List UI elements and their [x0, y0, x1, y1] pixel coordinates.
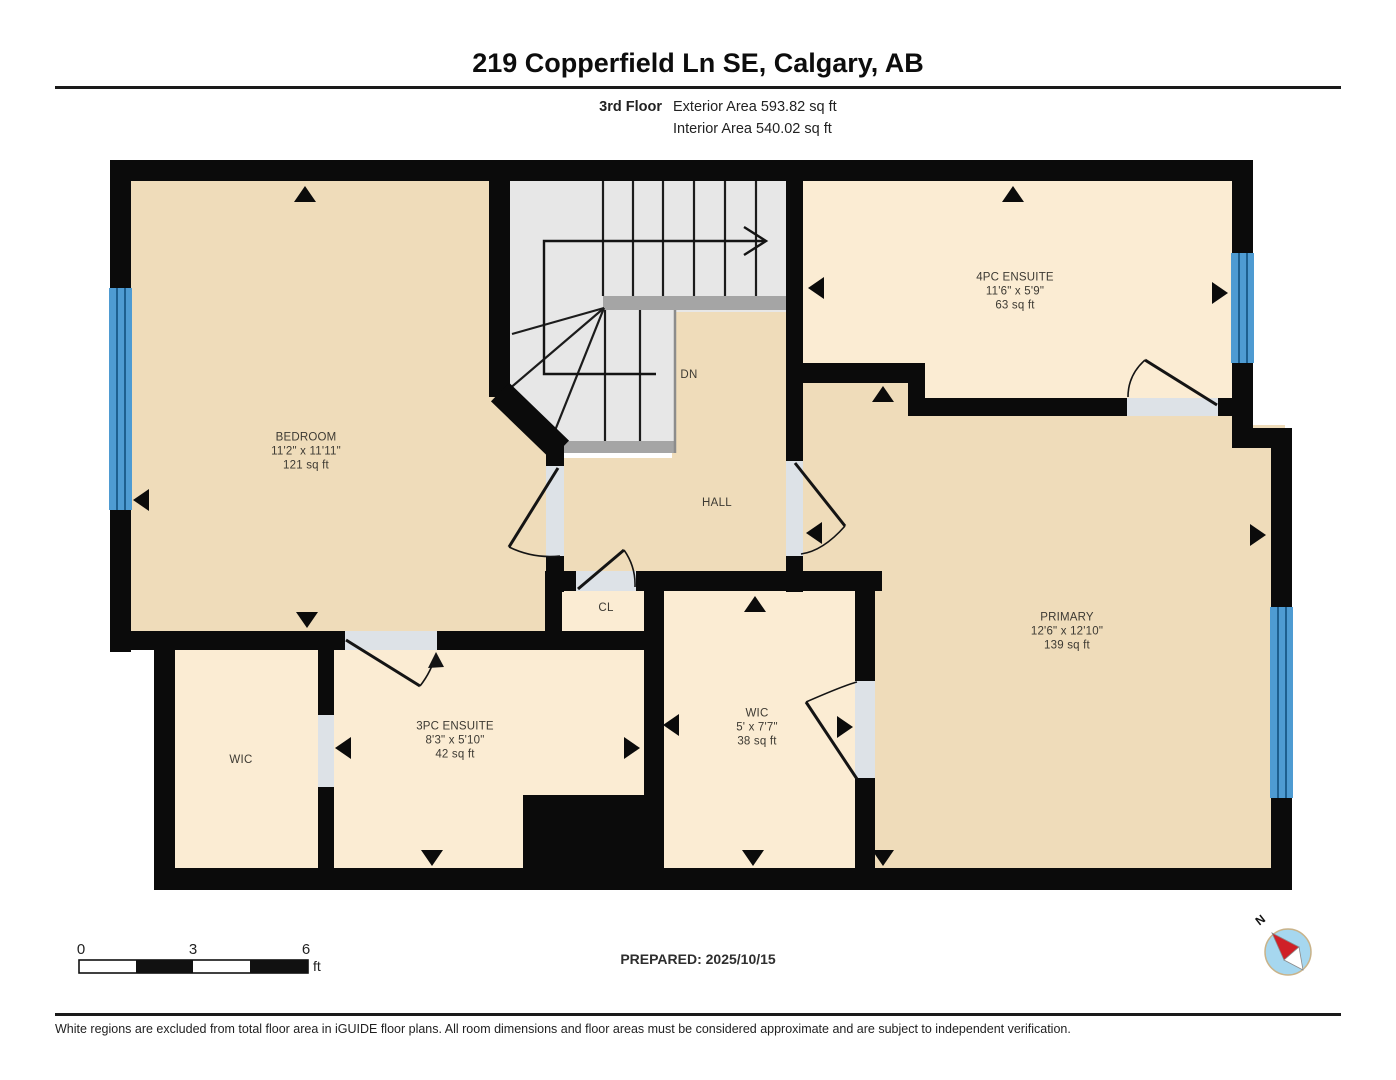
bedroom-door-opening: [546, 466, 564, 556]
floor-plan-page: 219 Copperfield Ln SE, Calgary, AB 3rd F…: [0, 0, 1396, 1080]
wall-notch: [523, 795, 648, 890]
primary-door-opening: [786, 461, 803, 556]
floor-plan-drawing: [0, 0, 1396, 1080]
primary-window: [1270, 607, 1293, 798]
stair-bottom-strip: [560, 441, 675, 453]
room-label-ensuite4pc: 4PC ENSUITE 11'6" x 5'9" 63 sq ft: [976, 271, 1054, 312]
ensuite4pc-door-opening: [1127, 398, 1218, 416]
footer-divider: [55, 1013, 1341, 1016]
closet-label: CL: [598, 602, 613, 614]
prepared-date: PREPARED: 2025/10/15: [0, 951, 1396, 967]
wic-left-opening: [318, 715, 334, 787]
room-label-wic-left: WIC: [229, 754, 252, 766]
room-label-wic-center: WIC 5' x 7'7" 38 sq ft: [736, 707, 778, 748]
room-label-primary: PRIMARY 12'6" x 12'10" 139 sq ft: [1031, 611, 1103, 652]
stair-landing-strip: [603, 296, 786, 310]
hall-label: HALL: [702, 497, 732, 509]
closet-door-opening: [576, 571, 636, 591]
room-label-ensuite3pc: 3PC ENSUITE 8'3" x 5'10" 42 sq ft: [416, 720, 494, 761]
ensuite4pc-window: [1231, 253, 1254, 363]
stairs-down-label: DN: [680, 369, 697, 381]
wic-door-opening: [855, 681, 875, 778]
bedroom-window: [109, 288, 132, 510]
room-label-bedroom: BEDROOM 11'2" x 11'11" 121 sq ft: [271, 431, 341, 472]
footer-disclaimer: White regions are excluded from total fl…: [55, 1022, 1355, 1036]
